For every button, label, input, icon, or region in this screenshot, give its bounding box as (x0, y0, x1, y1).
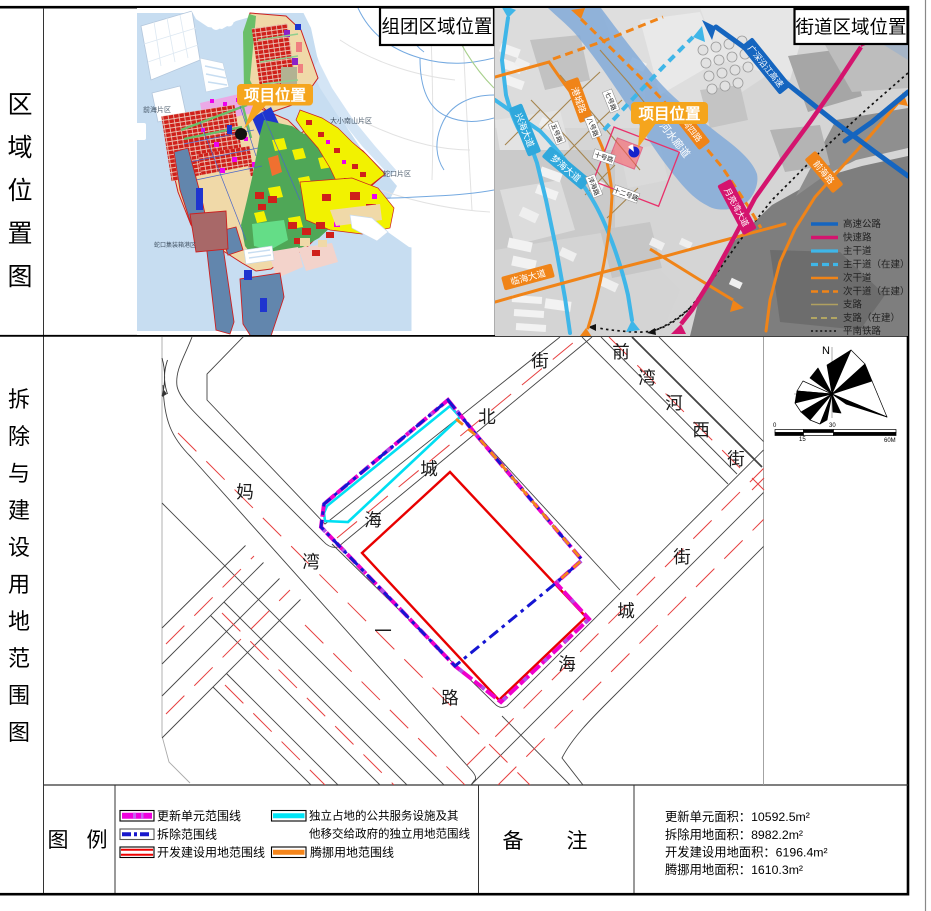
svg-text:快速路: 快速路 (843, 232, 872, 244)
svg-text:主干道（在建）: 主干道（在建） (843, 259, 910, 271)
svg-text:图: 图 (7, 263, 32, 291)
svg-text:腾挪用地面积：1610.3m²: 腾挪用地面积：1610.3m² (665, 862, 803, 877)
svg-text:主干道: 主干道 (843, 245, 872, 257)
svg-text:城: 城 (617, 601, 635, 621)
svg-text:项目位置: 项目位置 (244, 86, 306, 105)
svg-text:拆除范围线: 拆除范围线 (157, 827, 217, 842)
svg-text:范: 范 (8, 646, 30, 671)
svg-text:城: 城 (420, 459, 438, 479)
svg-text:拆除用地面积：8982.2m²: 拆除用地面积：8982.2m² (665, 827, 803, 842)
svg-text:用: 用 (8, 572, 30, 597)
svg-text:大小南山片区: 大小南山片区 (330, 116, 372, 125)
svg-text:地: 地 (8, 609, 30, 634)
svg-text:与: 与 (8, 461, 30, 486)
svg-text:项目位置: 项目位置 (638, 104, 700, 123)
svg-text:独立占地的公共服务设施及其: 独立占地的公共服务设施及其 (309, 809, 459, 823)
svg-text:图: 图 (8, 720, 30, 745)
svg-text:15: 15 (799, 437, 806, 443)
svg-text:次干道（在建）: 次干道（在建） (843, 286, 910, 298)
svg-text:前: 前 (612, 342, 630, 362)
svg-text:前海片区: 前海片区 (143, 105, 171, 114)
svg-text:60M: 60M (884, 438, 896, 444)
svg-text:置: 置 (7, 220, 32, 248)
svg-text:河: 河 (665, 393, 683, 413)
svg-text:更新单元范围线: 更新单元范围线 (157, 808, 241, 823)
svg-text:30: 30 (829, 423, 836, 429)
svg-text:图: 图 (48, 829, 69, 852)
svg-text:他移交给政府的独立用地范围线: 他移交给政府的独立用地范围线 (309, 827, 470, 841)
svg-text:支路: 支路 (843, 299, 863, 311)
svg-text:围: 围 (8, 683, 30, 708)
svg-text:建: 建 (8, 498, 30, 523)
svg-text:一: 一 (374, 621, 392, 641)
svg-text:域: 域 (7, 134, 32, 162)
svg-text:N: N (822, 345, 830, 357)
svg-text:蛇口片区: 蛇口片区 (383, 169, 411, 178)
svg-text:支路（在建）: 支路（在建） (843, 312, 900, 324)
svg-text:注: 注 (567, 830, 588, 853)
svg-text:高速公路: 高速公路 (843, 218, 882, 230)
svg-text:备: 备 (503, 830, 524, 853)
svg-text:更新单元面积：10592.5m²: 更新单元面积：10592.5m² (665, 809, 810, 824)
svg-text:路: 路 (441, 688, 459, 708)
svg-text:除: 除 (8, 424, 30, 449)
svg-text:妈: 妈 (236, 482, 254, 502)
svg-text:腾挪用地范围线: 腾挪用地范围线 (310, 845, 394, 860)
svg-text:西: 西 (692, 420, 710, 440)
svg-text:设: 设 (8, 535, 30, 560)
svg-text:开发建设用地范围线: 开发建设用地范围线 (157, 845, 265, 860)
svg-text:蛇口集装箱港区: 蛇口集装箱港区 (154, 241, 196, 249)
svg-text:次干道: 次干道 (843, 272, 872, 284)
svg-text:湾: 湾 (638, 368, 656, 388)
svg-text:平南铁路: 平南铁路 (843, 325, 882, 337)
svg-text:位: 位 (7, 177, 32, 205)
svg-text:海: 海 (558, 654, 576, 674)
svg-text:组团区域位置: 组团区域位置 (381, 16, 492, 37)
svg-text:街: 街 (531, 351, 549, 371)
svg-text:街: 街 (673, 547, 691, 567)
svg-text:区: 区 (7, 91, 32, 119)
svg-text:街道区域位置: 街道区域位置 (795, 17, 906, 38)
svg-text:例: 例 (87, 829, 108, 852)
svg-text:拆: 拆 (8, 387, 30, 412)
svg-text:街: 街 (727, 449, 745, 469)
svg-text:开发建设用地面积：6196.4m²: 开发建设用地面积：6196.4m² (665, 845, 828, 860)
svg-text:北: 北 (478, 407, 496, 427)
svg-text:湾: 湾 (302, 552, 320, 572)
svg-text:海: 海 (364, 510, 382, 530)
